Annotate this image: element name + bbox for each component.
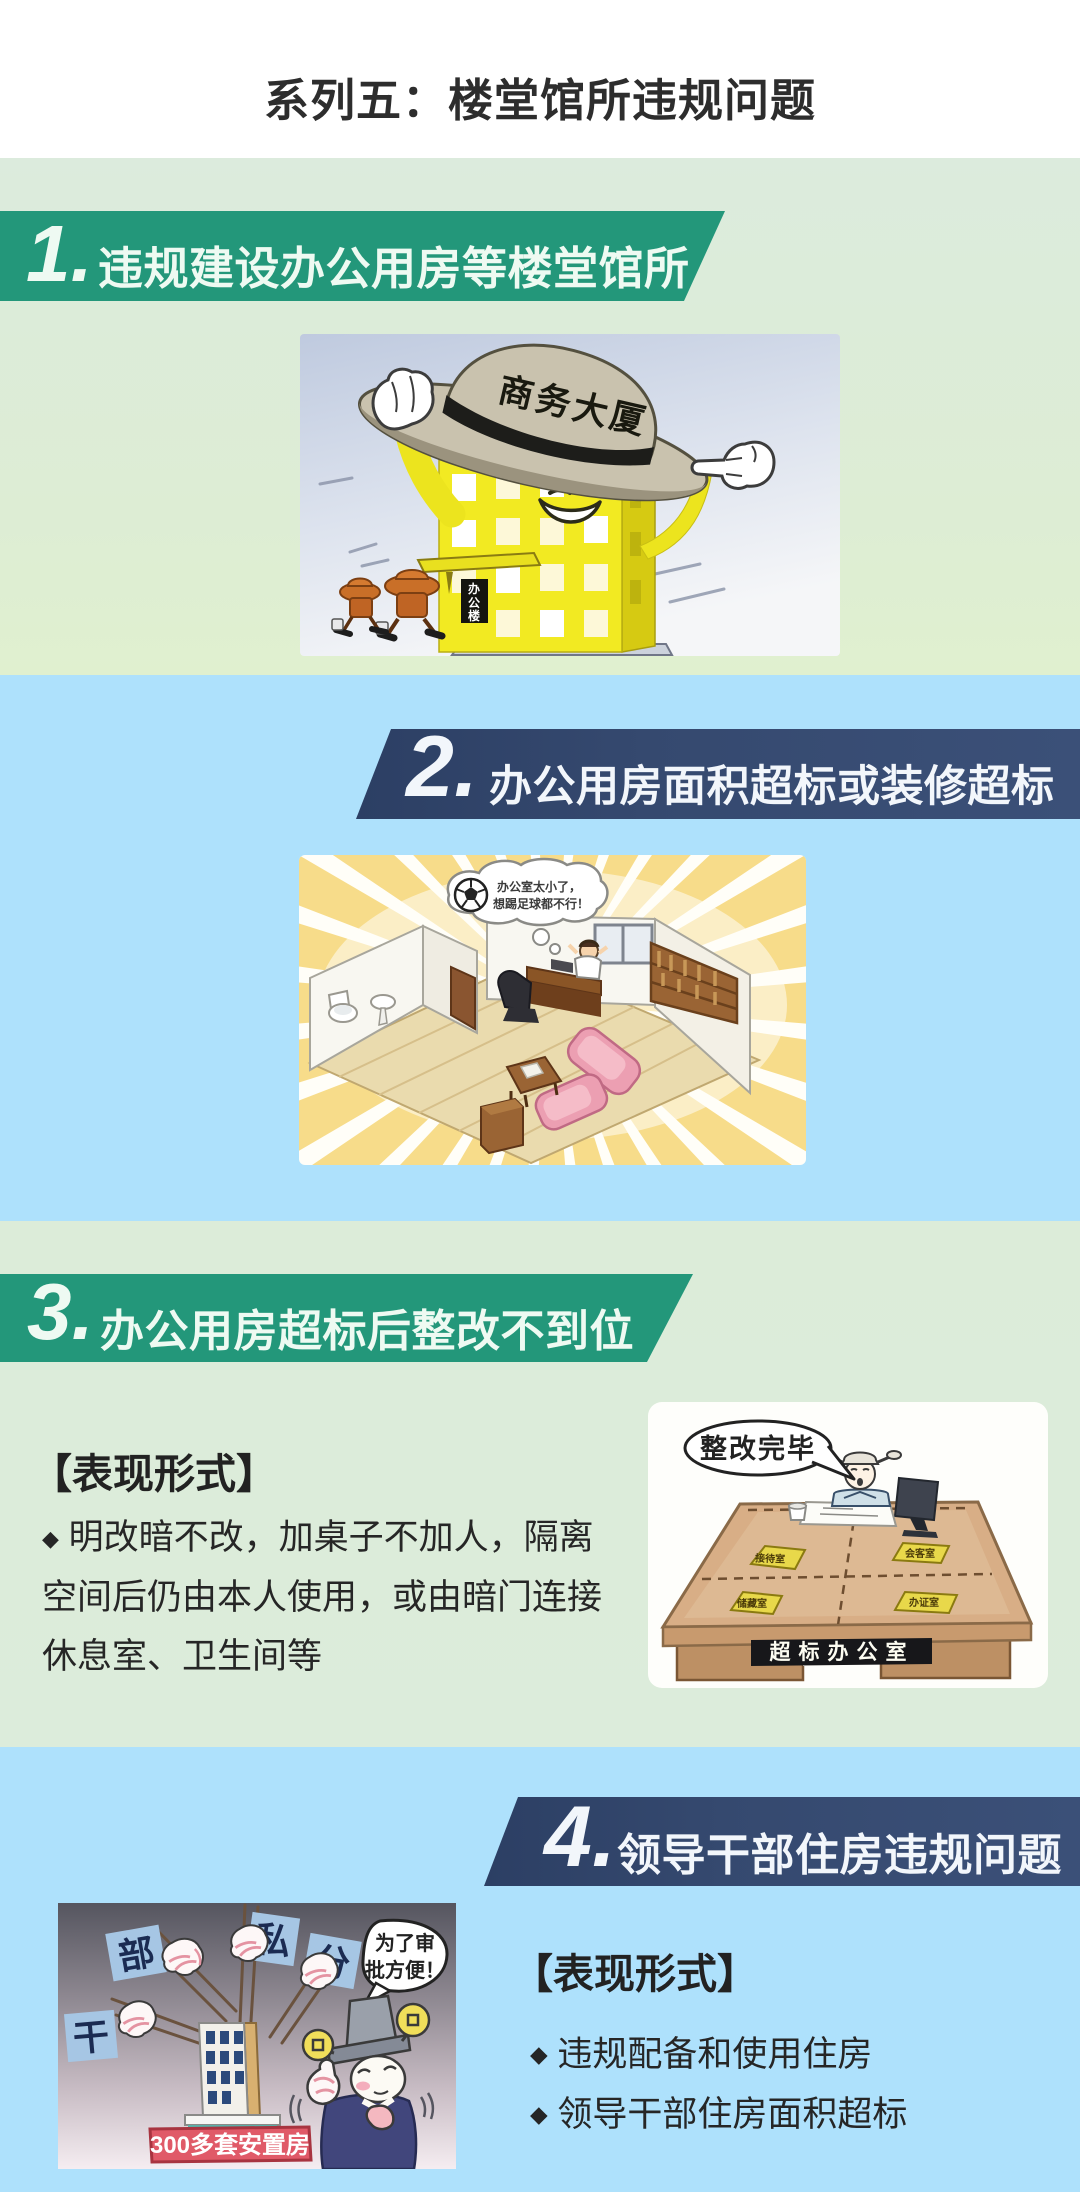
svg-text:批方便！: 批方便！ [365,1958,445,1982]
svg-text:超标办公室: 超标办公室 [770,1640,915,1664]
svg-text:楼: 楼 [468,608,480,623]
svg-text:会客室: 会客室 [905,1547,935,1560]
svg-text:300多套安置房: 300多套安置房 [150,2131,310,2159]
svg-text:想踢足球都不行！: 想踢足球都不行！ [492,896,589,911]
svg-text:储藏室: 储藏室 [736,1597,767,1610]
svg-text:办: 办 [468,581,480,596]
svg-text:接待室: 接待室 [755,1551,785,1565]
svg-text:干: 干 [71,2016,110,2060]
svg-text:公: 公 [468,596,480,610]
svg-text:为了审: 为了审 [375,1931,435,1955]
svg-text:办公室太小了，: 办公室太小了， [497,879,581,894]
svg-text:部: 部 [115,1931,158,1978]
svg-text:整改完毕: 整改完毕 [700,1433,816,1464]
svg-text:办证室: 办证室 [909,1596,939,1609]
